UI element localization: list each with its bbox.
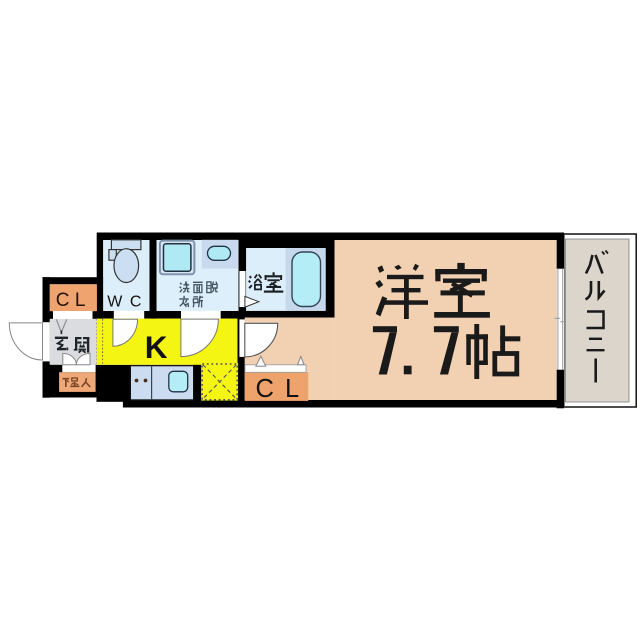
svg-text:WC: WC	[107, 293, 149, 310]
svg-text:C L: C L	[256, 375, 302, 403]
svg-text:K: K	[145, 329, 168, 365]
svg-text:CL: CL	[56, 290, 91, 311]
